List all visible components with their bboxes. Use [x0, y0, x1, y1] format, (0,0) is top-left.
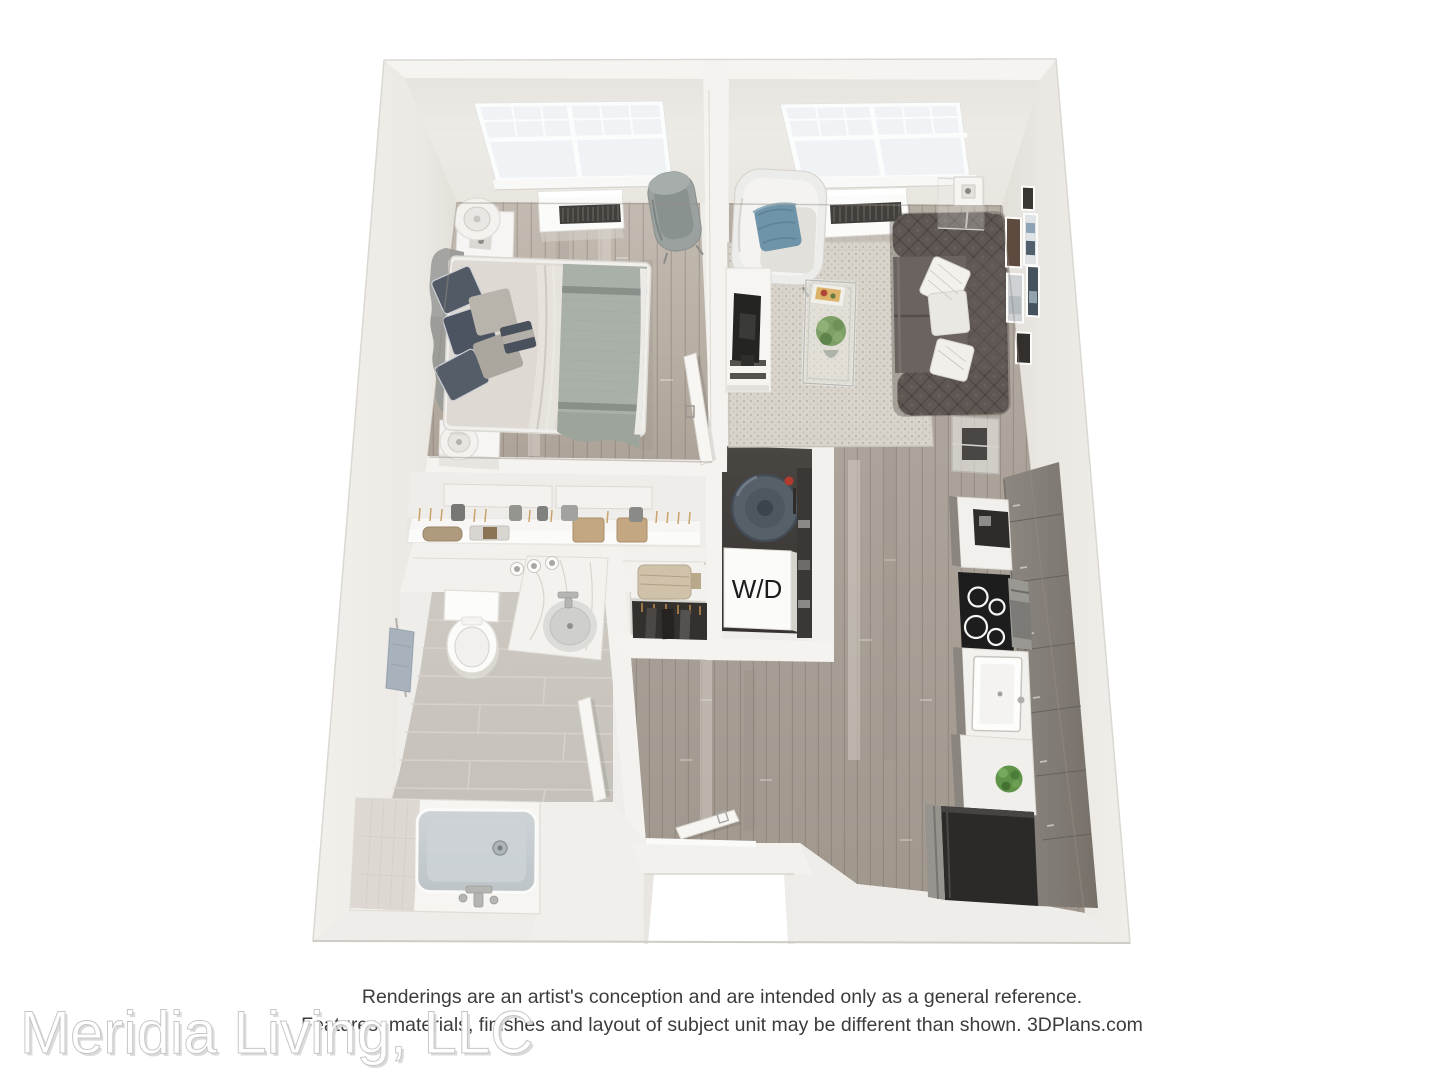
- svg-text:W/D: W/D: [732, 574, 783, 604]
- svg-text:Meridia Living, LLC: Meridia Living, LLC: [20, 999, 534, 1066]
